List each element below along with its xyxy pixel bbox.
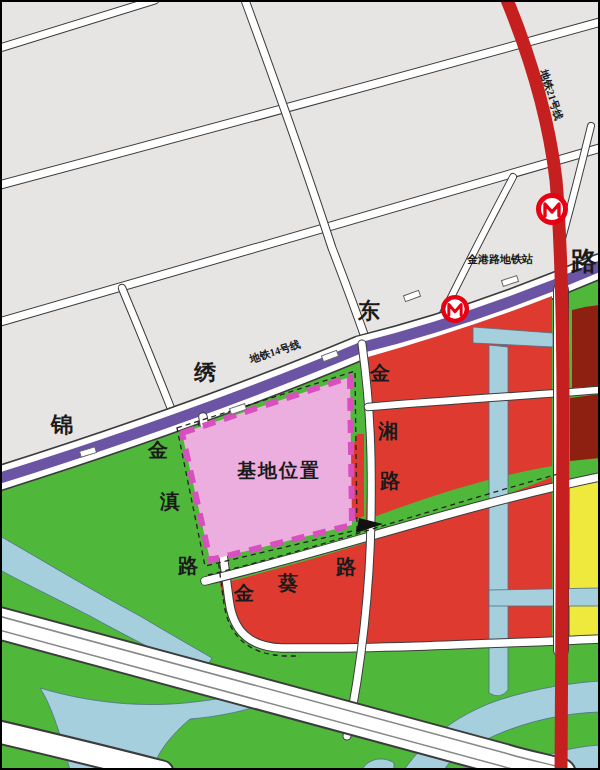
metro-station-logo-jingang (443, 297, 467, 321)
metro-station-logo-north (539, 196, 566, 223)
road-label-jinxiu-4: 路 (570, 247, 597, 276)
road-label-jinxiang-1: 金 (369, 362, 390, 384)
map-canvas: 锦 绣 东 路 金 滇 路 金 湘 路 金 葵 路 基地位置 金港路地铁站 地铁… (0, 0, 600, 770)
site-label: 基地位置 (237, 460, 321, 481)
road-label-jindian-3: 路 (177, 555, 199, 577)
road-label-jinxiu-3: 东 (357, 298, 380, 323)
dark-red-zone-2 (570, 394, 600, 461)
road-label-jinxiang-2: 湘 (377, 420, 398, 442)
station-label: 金港路地铁站 (466, 253, 533, 265)
road-label-jinkui-2: 葵 (277, 572, 298, 594)
yellow-zone-1 (570, 480, 600, 592)
planning-map: 锦 绣 东 路 金 滇 路 金 湘 路 金 葵 路 基地位置 金港路地铁站 地铁… (0, 0, 600, 770)
road-label-jinkui-1: 金 (233, 582, 254, 604)
road-label-jindian-1: 金 (147, 439, 168, 461)
yellow-zone-2 (570, 602, 600, 640)
road-label-jinxiang-3: 路 (379, 470, 401, 492)
road-label-jinxiu-1: 锦 (50, 412, 73, 437)
dark-red-zone-1 (572, 305, 600, 388)
canal-east (489, 588, 600, 606)
road-label-jinxiu-2: 绣 (193, 360, 217, 385)
road-label-jinkui-3: 路 (335, 556, 357, 578)
road-label-jindian-2: 滇 (159, 490, 180, 512)
